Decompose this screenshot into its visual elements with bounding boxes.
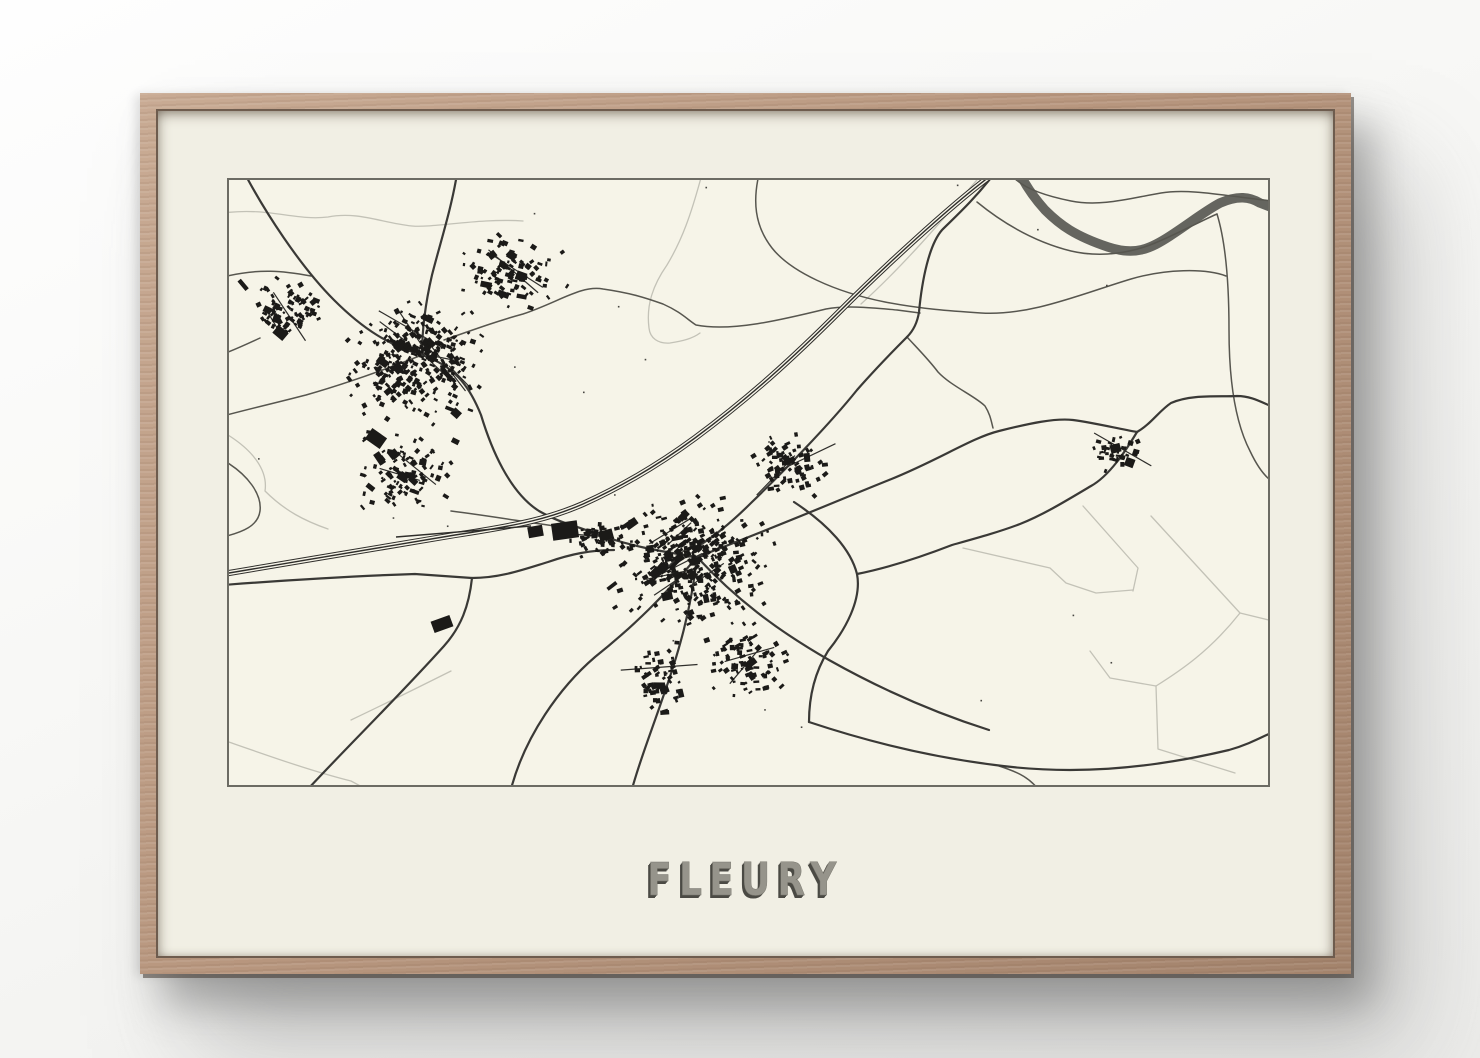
railway	[229, 180, 993, 574]
page-background: FLEURY	[0, 0, 1480, 1058]
city-map	[229, 180, 1268, 785]
poster-frame: FLEURY	[140, 93, 1351, 974]
river	[1020, 180, 1268, 251]
minor-roads	[229, 180, 1268, 785]
town-lanes	[266, 250, 1151, 684]
buildings	[237, 232, 1140, 715]
map-panel	[227, 178, 1270, 787]
poster-title: FLEURY	[276, 853, 1216, 906]
field-lines	[229, 180, 1268, 785]
countryside-speckles	[258, 185, 1112, 728]
poster-mat: FLEURY	[158, 111, 1333, 956]
major-roads	[229, 180, 1268, 785]
